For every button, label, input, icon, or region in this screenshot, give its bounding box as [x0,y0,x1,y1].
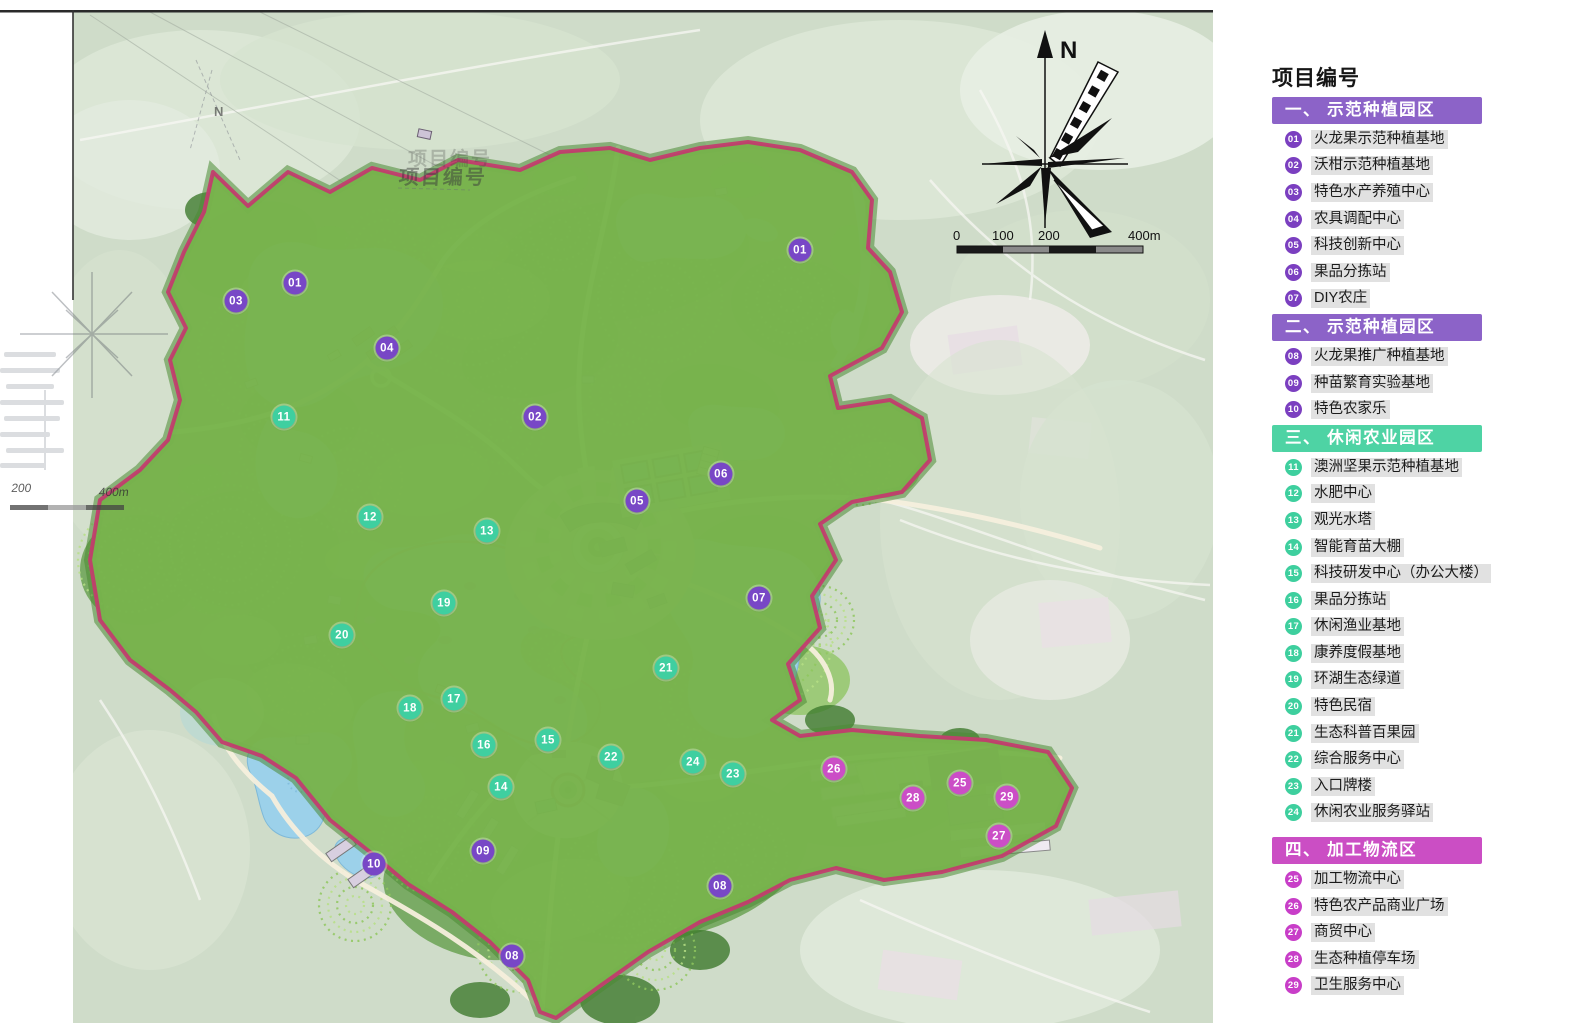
legend-section: 一、 示范种植园区 01 火龙果示范种植基地 02 沃柑示范种植基地 03 特色… [1272,97,1490,312]
legend-item-number-badge: 23 [1285,778,1302,795]
legend-item: 15 科技研发中心（办公大楼） [1272,560,1490,587]
legend-item: 29 卫生服务中心 [1272,973,1490,1000]
legend-section-heading: 三、 休闲农业园区 [1272,425,1482,452]
ghost-scale-bar [10,505,124,510]
legend-item: 14 智能育苗大棚 [1272,534,1490,561]
legend-section-items: 11 澳洲坚果示范种植基地 12 水肥中心 13 观光水塔 14 智能育苗大棚 … [1272,454,1490,826]
legend-item-label: 果品分拣站 [1311,263,1390,282]
legend-item-number-badge: 08 [1285,348,1302,365]
left-border-line [72,10,74,300]
legend-item-number-badge: 13 [1285,512,1302,529]
legend-item-label: 休闲渔业基地 [1311,617,1404,636]
ghost-scale-200: 200 [10,481,32,495]
scale-label-100: 100 [992,228,1014,243]
legend-section-heading-label: 三、 休闲农业园区 [1285,429,1435,447]
legend-section-heading: 二、 示范种植园区 [1272,314,1482,341]
legend-item-label: 智能育苗大棚 [1311,538,1404,557]
scale-label-0: 0 [953,228,960,243]
legend-panel: 项目编号 一、 示范种植园区 01 火龙果示范种植基地 02 沃柑示范种植基地 … [1272,62,1490,999]
legend-item-number-badge: 05 [1285,237,1302,254]
legend-item: 24 休闲农业服务驿站 [1272,800,1490,827]
legend-item: 04 农具调配中心 [1272,206,1490,233]
ghost-scale-400m: 400m [98,485,130,499]
legend-item-number-badge: 28 [1285,951,1302,968]
legend-item: 28 生态种植停车场 [1272,946,1490,973]
legend-item-number-badge: 26 [1285,898,1302,915]
scale-label-400m: 400m [1128,228,1161,243]
legend-item: 16 果品分拣站 [1272,587,1490,614]
legend-item-number-badge: 22 [1285,751,1302,768]
legend-item-number-badge: 29 [1285,977,1302,994]
legend-item: 05 科技创新中心 [1272,232,1490,259]
legend-item: 02 沃柑示范种植基地 [1272,153,1490,180]
legend-item-label: 入口牌楼 [1311,777,1375,796]
legend-item-label: 康养度假基地 [1311,644,1404,663]
legend-item-number-badge: 20 [1285,698,1302,715]
legend-section-heading-label: 一、 示范种植园区 [1285,101,1435,119]
legend-item: 23 入口牌楼 [1272,773,1490,800]
legend-item-label: 农具调配中心 [1311,210,1404,229]
legend-item: 08 火龙果推广种植基地 [1272,343,1490,370]
legend-item-number-badge: 25 [1285,871,1302,888]
legend-item-label: 卫生服务中心 [1311,976,1404,995]
legend-section-items: 08 火龙果推广种植基地 09 种苗繁育实验基地 10 特色农家乐 [1272,343,1490,423]
legend-item: 11 澳洲坚果示范种植基地 [1272,454,1490,481]
legend-item-label: 环湖生态绿道 [1311,670,1404,689]
legend-item-label: 商贸中心 [1311,923,1375,942]
legend-title: 项目编号 [1272,62,1490,89]
legend-item-label: 澳洲坚果示范种植基地 [1311,458,1462,477]
legend-item-label: 果品分拣站 [1311,591,1390,610]
legend-section: 三、 休闲农业园区 11 澳洲坚果示范种植基地 12 水肥中心 13 观光水塔 … [1272,425,1490,826]
legend-item-number-badge: 07 [1285,290,1302,307]
legend-item: 10 特色农家乐 [1272,396,1490,423]
legend-item-number-badge: 18 [1285,645,1302,662]
legend-item-number-badge: 09 [1285,375,1302,392]
legend-item: 18 康养度假基地 [1272,640,1490,667]
legend-item: 01 火龙果示范种植基地 [1272,126,1490,153]
plan-document-page: N 0 100 200 400m [0,0,1575,1023]
legend-item: 20 特色民宿 [1272,693,1490,720]
legend-item: 06 果品分拣站 [1272,259,1490,286]
legend-item-label: 特色民宿 [1311,697,1375,716]
legend-item-number-badge: 15 [1285,565,1302,582]
legend-item-label: 火龙果示范种植基地 [1311,130,1448,149]
legend-item-label: 休闲农业服务驿站 [1311,803,1433,822]
legend-section-items: 01 火龙果示范种植基地 02 沃柑示范种植基地 03 特色水产养殖中心 04 … [1272,126,1490,312]
legend-item: 13 观光水塔 [1272,507,1490,534]
legend-item-number-badge: 01 [1285,131,1302,148]
legend-item: 25 加工物流中心 [1272,866,1490,893]
legend-item-number-badge: 11 [1285,459,1302,476]
legend-section-heading: 四、 加工物流区 [1272,837,1482,864]
legend-section-heading-label: 四、 加工物流区 [1285,841,1417,859]
legend-item-number-badge: 27 [1285,924,1302,941]
legend-item-number-badge: 04 [1285,211,1302,228]
top-border-line [0,10,1213,13]
legend-item-label: 火龙果推广种植基地 [1311,347,1448,366]
legend-item-number-badge: 24 [1285,804,1302,821]
legend-item-label: 特色水产养殖中心 [1311,183,1433,202]
legend-item-label: 观光水塔 [1311,511,1375,530]
north-label: N [1060,37,1077,64]
legend-item-number-badge: 12 [1285,485,1302,502]
legend-item-label: DIY农庄 [1311,289,1370,308]
legend-item: 27 商贸中心 [1272,919,1490,946]
legend-item-label: 科技研发中心（办公大楼） [1311,564,1491,583]
scale-label-200: 200 [1038,228,1060,243]
legend-item-label: 加工物流中心 [1311,870,1404,889]
legend-item: 19 环湖生态绿道 [1272,667,1490,694]
legend-item-number-badge: 16 [1285,592,1302,609]
legend-item-label: 生态科普百果园 [1311,724,1419,743]
legend-item-label: 生态种植停车场 [1311,950,1419,969]
legend-item: 17 休闲渔业基地 [1272,614,1490,641]
legend-section: 四、 加工物流区 25 加工物流中心 26 特色农产品商业广场 27 商贸中心 … [1272,837,1490,999]
legend-item-number-badge: 17 [1285,618,1302,635]
legend-item: 21 生态科普百果园 [1272,720,1490,747]
legend-section-heading-label: 二、 示范种植园区 [1285,318,1435,336]
legend-item-label: 科技创新中心 [1311,236,1404,255]
legend-item-label: 种苗繁育实验基地 [1311,374,1433,393]
legend-item-label: 综合服务中心 [1311,750,1404,769]
ghost-title-line2: 项目编号 [398,161,488,190]
legend-item: 26 特色农产品商业广场 [1272,893,1490,920]
legend-section-items: 25 加工物流中心 26 特色农产品商业广场 27 商贸中心 28 生态种植停车… [1272,866,1490,999]
legend-sections: 一、 示范种植园区 01 火龙果示范种植基地 02 沃柑示范种植基地 03 特色… [1272,97,1490,999]
legend-item: 12 水肥中心 [1272,481,1490,508]
legend-item-number-badge: 14 [1285,539,1302,556]
legend-item-label: 特色农家乐 [1311,400,1390,419]
legend-section: 二、 示范种植园区 08 火龙果推广种植基地 09 种苗繁育实验基地 10 特色… [1272,314,1490,423]
legend-item-number-badge: 10 [1285,401,1302,418]
legend-item-number-badge: 03 [1285,184,1302,201]
legend-item-label: 水肥中心 [1311,484,1375,503]
legend-item: 09 种苗繁育实验基地 [1272,370,1490,397]
legend-item: 22 综合服务中心 [1272,746,1490,773]
legend-item: 07 DIY农庄 [1272,286,1490,313]
legend-item-number-badge: 19 [1285,671,1302,688]
legend-item-number-badge: 06 [1285,264,1302,281]
legend-item-label: 特色农产品商业广场 [1311,897,1448,916]
legend-item-number-badge: 21 [1285,725,1302,742]
legend-section-heading: 一、 示范种植园区 [1272,97,1482,124]
legend-item-number-badge: 02 [1285,157,1302,174]
legend-item: 03 特色水产养殖中心 [1272,179,1490,206]
legend-item-label: 沃柑示范种植基地 [1311,156,1433,175]
